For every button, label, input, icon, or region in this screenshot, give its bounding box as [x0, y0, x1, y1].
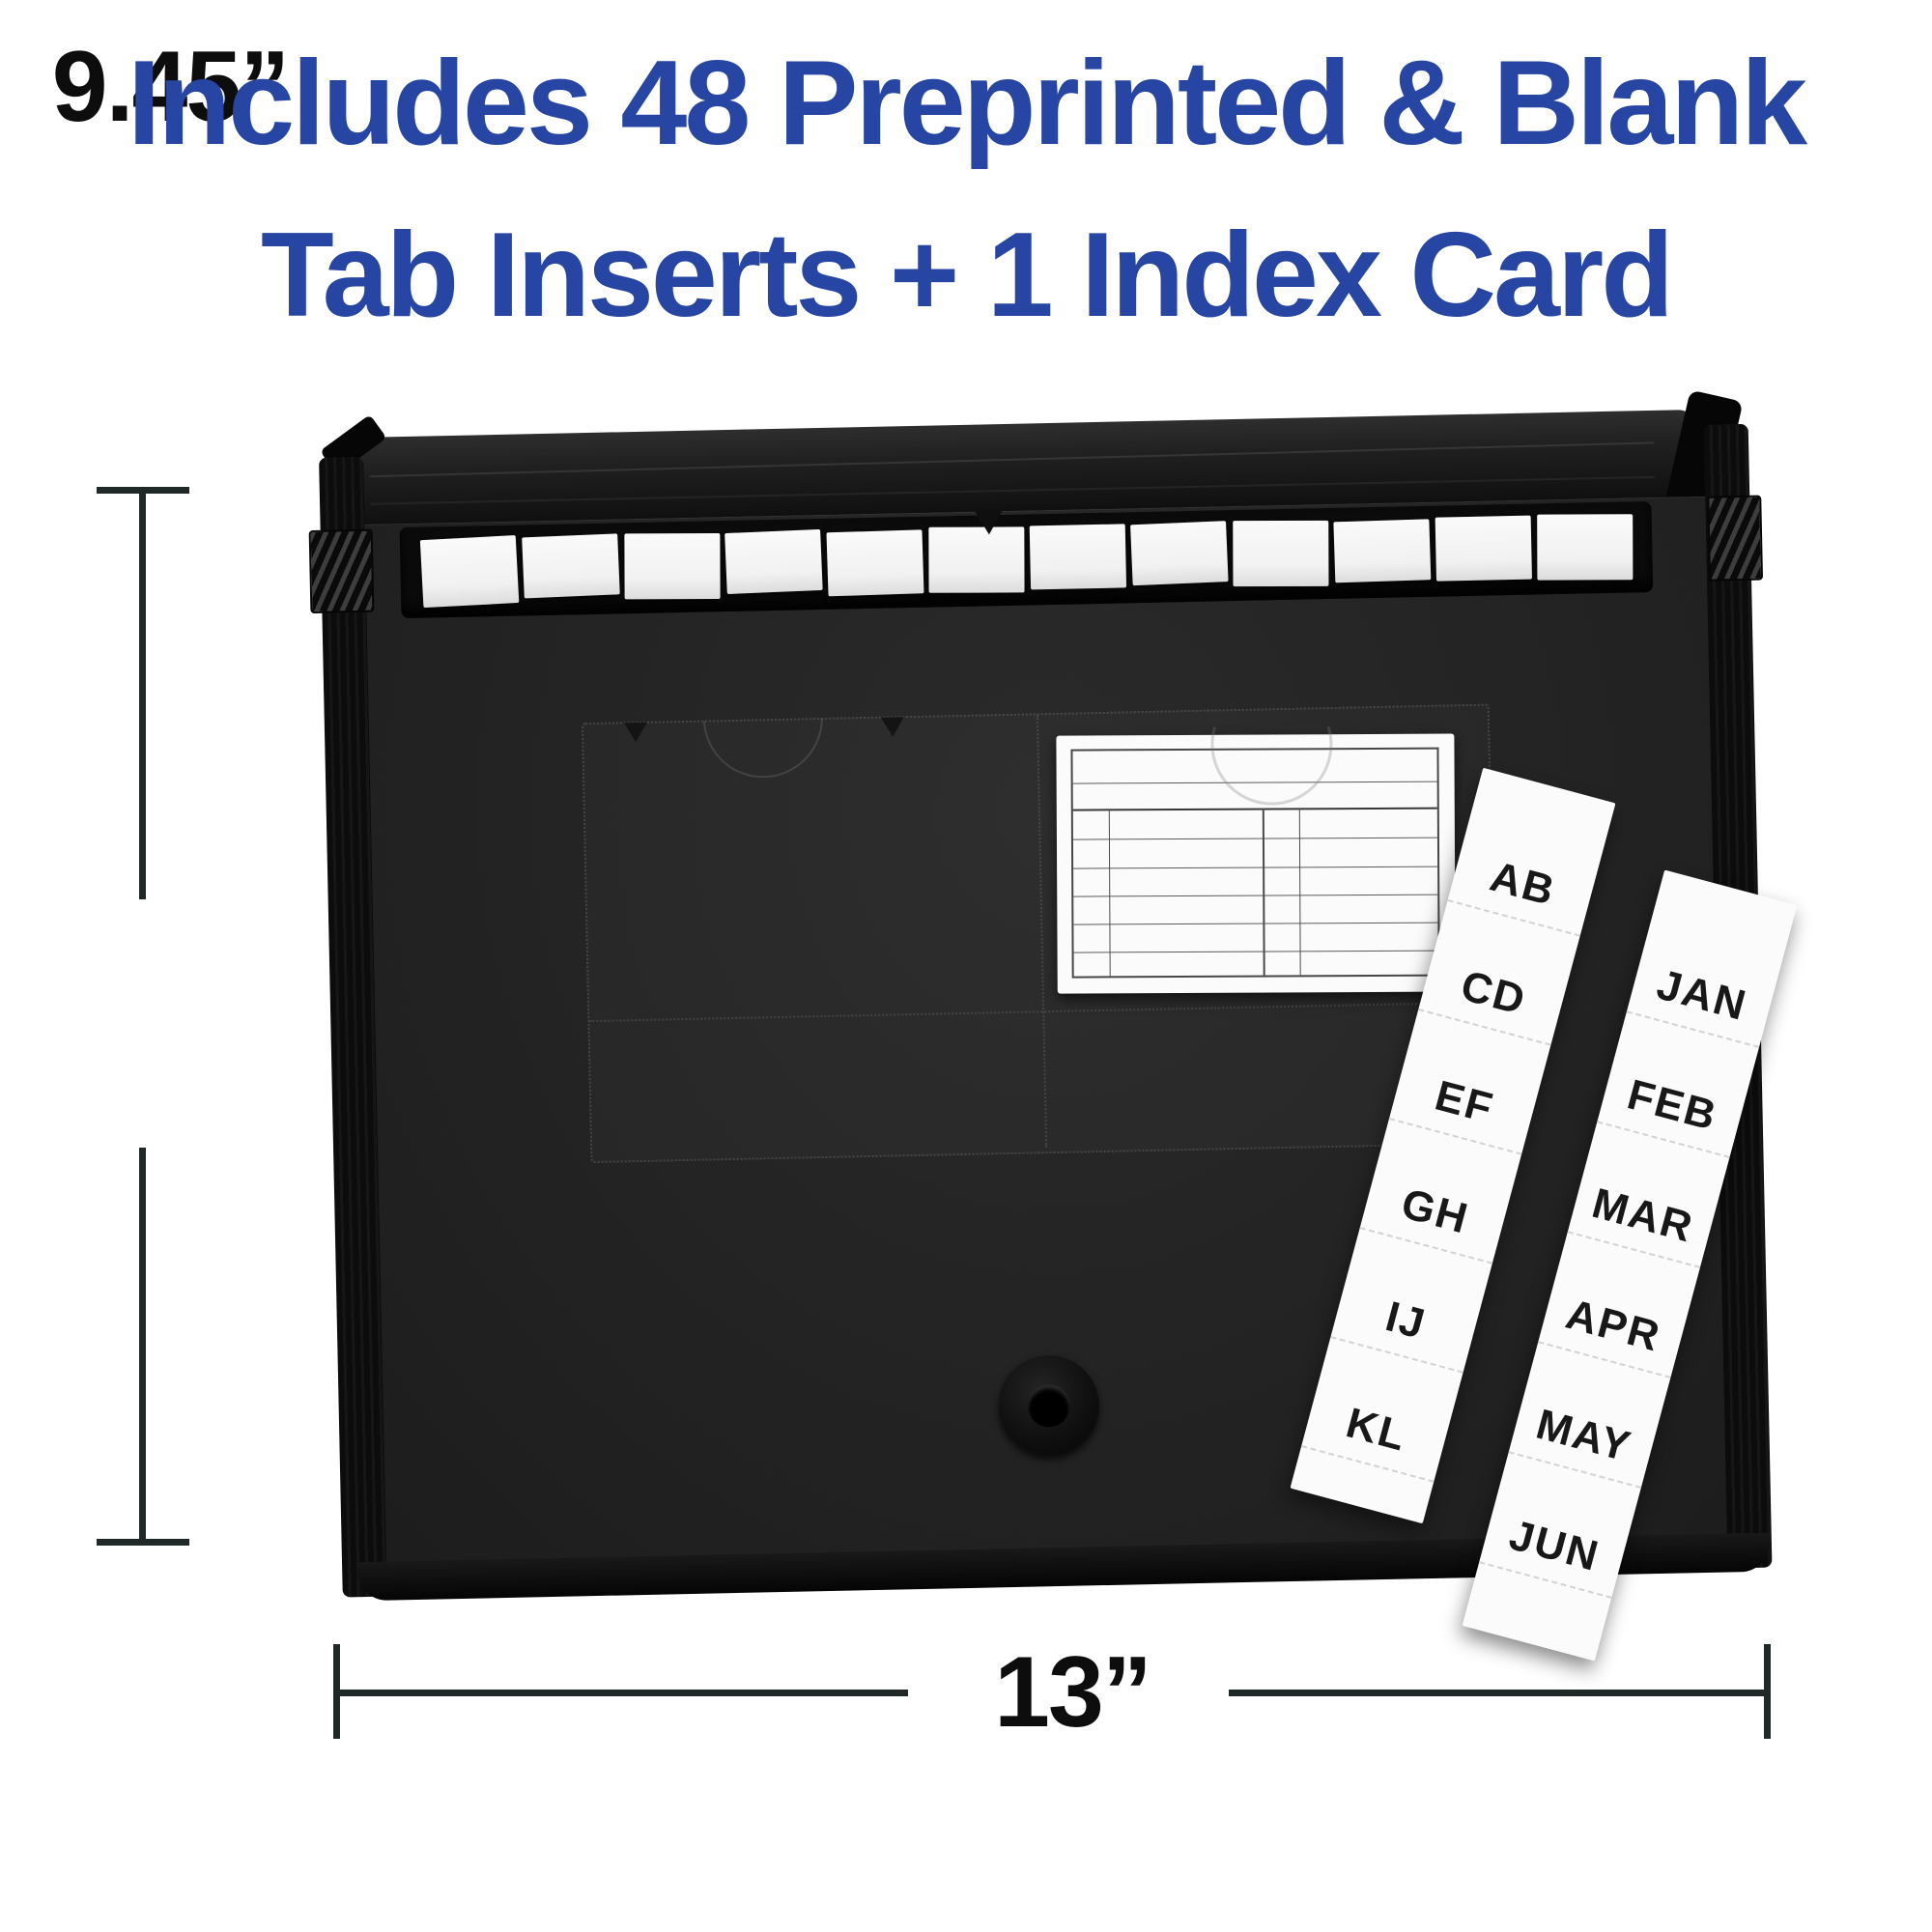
headline-line-2: Tab Inserts + 1 Index Card: [0, 189, 1932, 361]
blank-tab-insert: [624, 533, 720, 599]
blank-tab-insert: [420, 535, 520, 608]
product-image-page: Includes 48 Preprinted & Blank Tab Inser…: [0, 0, 1932, 1932]
height-dimension-cap-top: [97, 487, 189, 494]
headline: Includes 48 Preprinted & Blank Tab Inser…: [0, 17, 1932, 361]
card-grid-line: [1073, 895, 1437, 897]
thumb-notch-arc: [1210, 726, 1333, 806]
index-card: [1056, 734, 1455, 994]
blank-tab-insert: [826, 529, 923, 596]
strap-anchor-left: [309, 529, 375, 613]
card-grid-line: [1074, 951, 1438, 953]
width-dimension-cap-left: [333, 1644, 340, 1739]
blank-tab-insert: [928, 526, 1024, 592]
card-grid-line: [1073, 867, 1437, 869]
blank-tab-insert: [522, 533, 620, 598]
strap-anchor-right: [1707, 496, 1763, 582]
blank-tab-insert: [724, 529, 823, 594]
pocket-thumb-notch: [701, 719, 824, 780]
blank-tab-insert: [1435, 516, 1532, 582]
height-dimension-cap-bottom: [97, 1539, 189, 1546]
width-dimension-cap-right: [1764, 1644, 1771, 1739]
blank-tab-insert: [1030, 524, 1126, 589]
panel-v-notch: [975, 511, 1002, 535]
lid-highlight-streak: [369, 441, 1654, 477]
blank-tab-insert: [1333, 519, 1431, 582]
snap-button-hole: [1027, 1384, 1070, 1428]
pocket-thumb-notch-over-card: [1191, 726, 1356, 834]
card-grid-line: [1073, 923, 1437, 925]
headline-line-1: Includes 48 Preprinted & Blank: [0, 17, 1932, 189]
pocket-v-cut: [624, 723, 647, 742]
blank-tab-insert: [1233, 521, 1328, 586]
height-dimension-line-upper: [139, 494, 146, 899]
blank-tab-insert: [1130, 521, 1229, 585]
width-dimension-line-right: [1229, 1690, 1764, 1696]
height-dimension-line-lower: [139, 1148, 146, 1542]
width-dimension-label: 13”: [918, 1633, 1227, 1753]
width-dimension-line-left: [340, 1690, 908, 1696]
thumb-notch-arc: [702, 719, 825, 780]
blank-tab-insert: [1537, 514, 1633, 580]
card-grid-line: [1109, 809, 1111, 976]
card-grid-line: [1073, 838, 1437, 840]
pocket-v-cut: [881, 717, 904, 736]
